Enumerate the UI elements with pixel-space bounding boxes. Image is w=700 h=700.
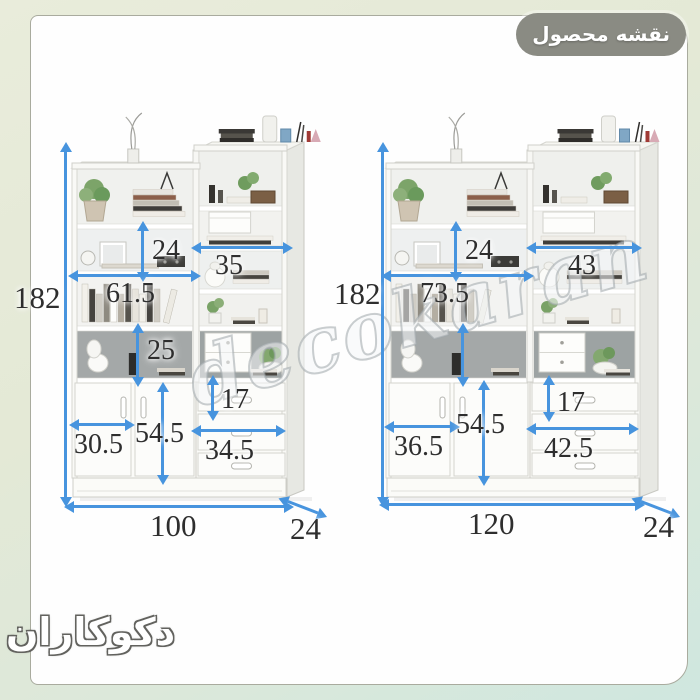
dim-label-left-depth: 24 — [290, 513, 321, 544]
dim-arrow-right-right-shelf-width — [536, 246, 632, 249]
dim-arrow-left-drawer-width — [201, 429, 276, 432]
brand-logo: دکوکاران — [6, 610, 175, 654]
dim-arrow-right-top-drawer-height — [547, 385, 550, 412]
dim-label-left-drawer-width: 34.5 — [205, 437, 254, 465]
dim-label-right-door-width: 36.5 — [394, 433, 443, 461]
dim-arrow-right-upper-cell-height — [454, 231, 457, 272]
dim-arrow-left-door-width — [79, 423, 125, 426]
dim-label-right-left-shelf-width: 73.5 — [420, 280, 469, 308]
dim-label-left-upper-cell-height: 24 — [152, 237, 180, 265]
dim-label-left-door-width: 30.5 — [74, 431, 123, 459]
dim-arrow-right-door-width — [394, 425, 450, 428]
dim-label-right-drawer-width: 42.5 — [544, 435, 593, 463]
dim-label-left-door-height: 54.5 — [135, 420, 184, 448]
dim-label-left-left-shelf-width: 61.5 — [106, 280, 155, 308]
dim-arrow-right-left-shelf-width — [391, 274, 524, 277]
dim-label-left-middle-cell-height: 25 — [147, 337, 175, 365]
dim-arrow-left-right-shelf-width — [201, 246, 283, 249]
dim-label-left-top-drawer-height: 17 — [221, 386, 249, 414]
dim-label-right-total-width: 120 — [468, 508, 515, 539]
dim-label-right-depth: 24 — [643, 511, 674, 542]
dim-arrow-right-drawer-width — [536, 427, 629, 430]
dim-arrow-right-middle-cell-height — [461, 333, 464, 377]
product-dimension-sheet: { "header": { "badge_label": "نقشه محصول… — [0, 0, 700, 700]
dim-arrow-left-total-height — [64, 152, 67, 497]
dim-arrow-left-top-drawer-height — [211, 385, 214, 411]
dim-label-right-total-height: 182 — [334, 278, 381, 309]
product-plan-badge: نقشه محصول — [516, 13, 686, 56]
dim-label-right-right-shelf-width: 43 — [568, 252, 596, 280]
dim-label-left-right-shelf-width: 35 — [215, 252, 243, 280]
dim-label-left-total-height: 182 — [14, 282, 61, 313]
dim-arrow-right-total-height — [381, 152, 384, 497]
dim-label-left-total-width: 100 — [150, 510, 197, 541]
dim-label-right-upper-cell-height: 24 — [465, 237, 493, 265]
dim-label-right-top-drawer-height: 17 — [557, 389, 585, 417]
dim-arrow-left-left-shelf-width — [78, 274, 191, 277]
dim-label-right-door-height: 54.5 — [456, 411, 505, 439]
dim-arrow-left-upper-cell-height — [141, 231, 144, 272]
dim-arrow-left-middle-cell-height — [136, 333, 139, 377]
